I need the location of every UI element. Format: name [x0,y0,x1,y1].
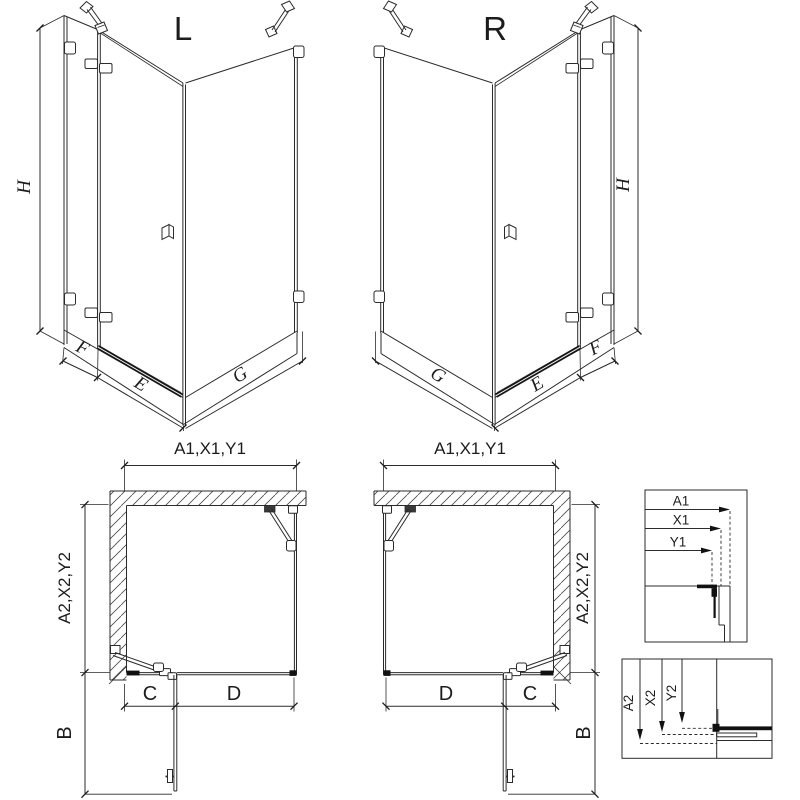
plan-strip-label-r: C [523,683,537,705]
plan-door-label-r: D [439,683,453,705]
variant-label-l: L [174,10,192,47]
detail-width-label-a1: A1 [673,494,690,509]
dim-label-height-l: H [14,179,35,195]
variant-r-plan: A1,X1,Y1 A2,X2,Y2 C D B [374,439,600,798]
variant-label-r: R [483,10,507,47]
plan-swing-label-l: B [54,726,76,739]
variant-l-perspective: L H F E G [14,1,306,432]
dim-label-door-r: E [526,372,548,397]
detail-width-label-x1: X1 [673,513,690,528]
wall-profile-section-top-view [697,585,730,642]
plan-width-label-r: A1,X1,Y1 [434,439,506,458]
diagram-page: L H F E G R H F E G A1,X1,Y1 A2,X2,Y2 C … [0,0,800,800]
dim-label-strip-r: F [585,336,606,361]
threshold-section-top-view [713,709,773,741]
dim-label-strip-l: F [72,336,93,361]
detail-box-width-adjustment: A1 X1 Y1 [645,490,747,642]
detail-depth-label-x2: X2 [643,690,658,707]
variant-r-perspective: R H F E G [372,1,642,432]
technical-diagram: L H F E G R H F E G A1,X1,Y1 A2,X2,Y2 C … [0,0,800,800]
wall-hatch-top-l [110,491,306,506]
detail-depth-label-y2: Y2 [664,685,679,702]
plan-depth-label-r: A2,X2,Y2 [573,552,592,624]
variant-l-plan: A1,X1,Y1 A2,X2,Y2 C D B [54,439,306,798]
plan-door-label-l: D [227,683,241,705]
dim-label-door-l: E [130,372,152,397]
plan-depth-label-l: A2,X2,Y2 [55,552,74,624]
detail-box-depth-adjustment: A2 X2 Y2 [621,659,772,758]
plan-swing-label-r: B [573,726,595,739]
plan-strip-label-l: C [143,683,157,705]
detail-box-width-border [645,490,747,642]
plan-width-label-l: A1,X1,Y1 [174,439,246,458]
detail-depth-label-a2: A2 [621,695,636,712]
detail-width-label-y1: Y1 [670,535,687,550]
dim-label-height-r: H [613,177,634,193]
wall-hatch-top-r [374,491,570,506]
